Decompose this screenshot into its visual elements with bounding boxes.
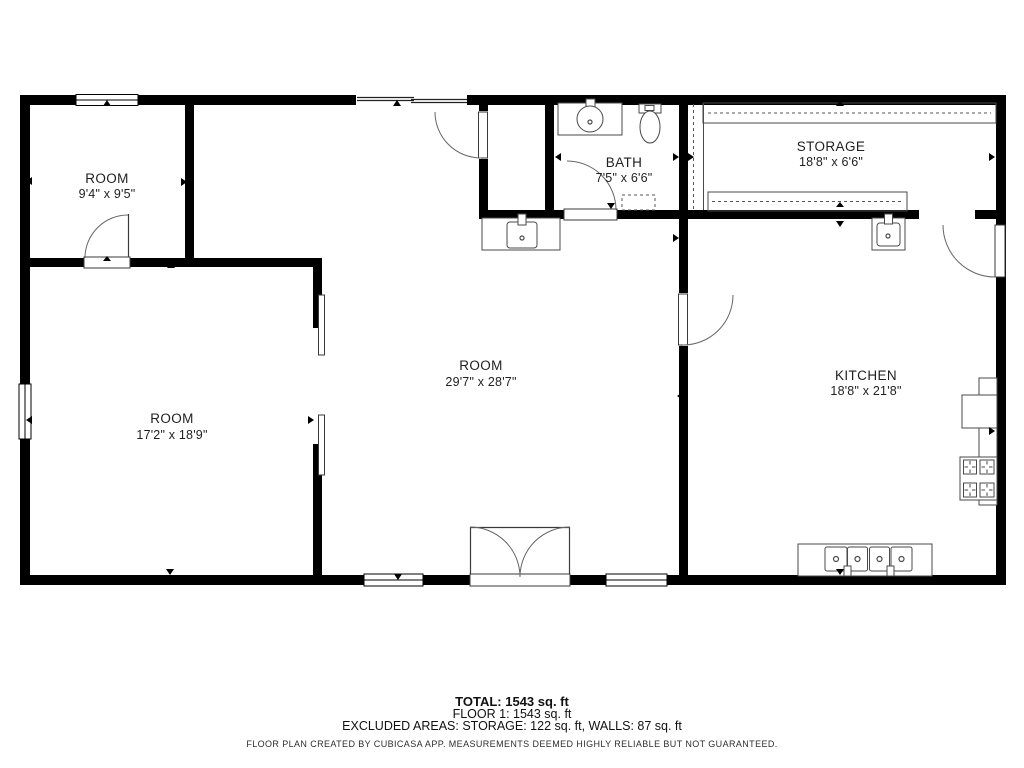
door-closet <box>435 111 489 159</box>
window-bottom-middle-1 <box>364 574 423 586</box>
french-doors-bottom <box>470 527 570 586</box>
kitchen-north-sink <box>872 214 905 250</box>
excluded-areas-text: EXCLUDED AREAS: STORAGE: 122 sq. ft, WAL… <box>0 720 1024 732</box>
storage-dims: 18'8" x 6'6" <box>799 155 863 169</box>
sliding-door-panels <box>319 295 325 475</box>
disclaimer-text: FLOOR PLAN CREATED BY CUBICASA APP. MEAS… <box>0 739 1024 749</box>
window-band-top-middle <box>356 93 467 107</box>
wall-room-tl-right <box>185 95 194 267</box>
bath-dims: 7'5" x 6'6" <box>596 171 653 185</box>
stove-cooktop <box>960 457 997 500</box>
measurement-arrows <box>26 100 995 580</box>
bath-dashed-area <box>622 195 655 210</box>
room-top-left-label: ROOM <box>85 171 129 186</box>
room-top-left-dims: 9'4" x 9'5" <box>79 187 136 201</box>
kitchen-bottom-counter-sinks <box>798 544 932 576</box>
hall-vanity-sink <box>482 214 560 250</box>
room-middle-dims: 29'7" x 28'7" <box>445 375 516 389</box>
wall-exterior-left <box>20 95 30 585</box>
door-kitchen-west <box>678 293 733 346</box>
floor-plan-page: ROOM 9'4" x 9'5" BATH 7'5" x 6'6" STORAG… <box>0 0 1024 768</box>
door-storage-to-kitchen <box>943 225 1005 277</box>
room-left-dims: 17'2" x 18'9" <box>136 428 207 442</box>
room-middle-label: ROOM <box>459 358 503 373</box>
summary-block: TOTAL: 1543 sq. ft FLOOR 1: 1543 sq. ft … <box>0 695 1024 749</box>
windows <box>19 93 667 586</box>
bath-sink <box>558 99 622 135</box>
floor-plan-drawing: ROOM 9'4" x 9'5" BATH 7'5" x 6'6" STORAG… <box>0 0 1024 768</box>
room-left-label: ROOM <box>150 411 194 426</box>
bath-label: BATH <box>606 155 643 170</box>
window-left-room <box>19 384 31 439</box>
doors <box>84 111 1005 586</box>
toilet <box>639 104 661 143</box>
wall-closet-bath-divider <box>545 95 554 215</box>
wall-storage-bottom-right <box>975 210 1006 219</box>
window-bottom-middle-2 <box>606 574 667 586</box>
kitchen-dims: 18'8" x 21'8" <box>830 384 901 398</box>
storage-label: STORAGE <box>797 139 866 154</box>
wall-exterior-right <box>996 95 1006 585</box>
room-labels: ROOM 9'4" x 9'5" BATH 7'5" x 6'6" STORAG… <box>79 139 902 442</box>
kitchen-label: KITCHEN <box>835 368 897 383</box>
